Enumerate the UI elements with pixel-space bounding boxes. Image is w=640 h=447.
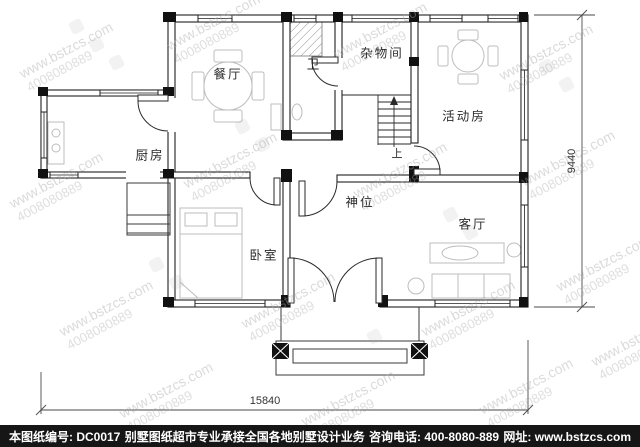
- bed: [180, 208, 242, 298]
- kitchen-door: [138, 95, 168, 131]
- dimension-width: 15840: [250, 395, 281, 407]
- room-label-dining: 餐厅: [213, 64, 242, 83]
- footer-phone: 咨询电话: 400-8080-889: [369, 428, 499, 445]
- activity-room-door: [414, 146, 440, 175]
- footer-drawing-number: 本图纸编号: DC0017: [9, 428, 120, 445]
- porch-column: [411, 343, 428, 359]
- room-label-bath: 卫: [307, 54, 322, 73]
- room-label-activity: 活动房: [442, 106, 486, 125]
- room-label-bedroom: 卧室: [249, 245, 278, 264]
- porch-column: [272, 343, 289, 359]
- footer-info-bar: 本图纸编号: DC0017 别墅图纸超市专业承接全国各地别墅设计业务 咨询电话:…: [0, 425, 640, 447]
- dimension-height: 9440: [566, 149, 578, 173]
- staircase: [342, 95, 411, 147]
- shrine-hall-door: [299, 181, 337, 216]
- stair-up-arrow: [390, 96, 398, 105]
- entrance-porch: [272, 307, 428, 375]
- side-steps: [127, 183, 170, 235]
- stair-up-label: 上: [392, 145, 403, 161]
- floor-plan-page: www.bstzcs.com4008080889www.bstzcs.com40…: [0, 0, 640, 447]
- room-label-storage: 杂物间: [360, 43, 404, 62]
- sofa-tv-set: [408, 243, 521, 298]
- bedroom-door: [250, 178, 280, 205]
- footer-website[interactable]: 网址: www.bstzcs.com: [503, 428, 631, 445]
- main-entrance-double-door: [288, 258, 382, 303]
- room-label-living: 客厅: [458, 214, 487, 233]
- room-label-shrine: 神位: [345, 192, 374, 211]
- room-label-kitchen: 厨房: [135, 145, 164, 164]
- footer-service-text: 别墅图纸超市专业承接全国各地别墅设计业务: [125, 428, 365, 445]
- shower-area: [290, 22, 322, 56]
